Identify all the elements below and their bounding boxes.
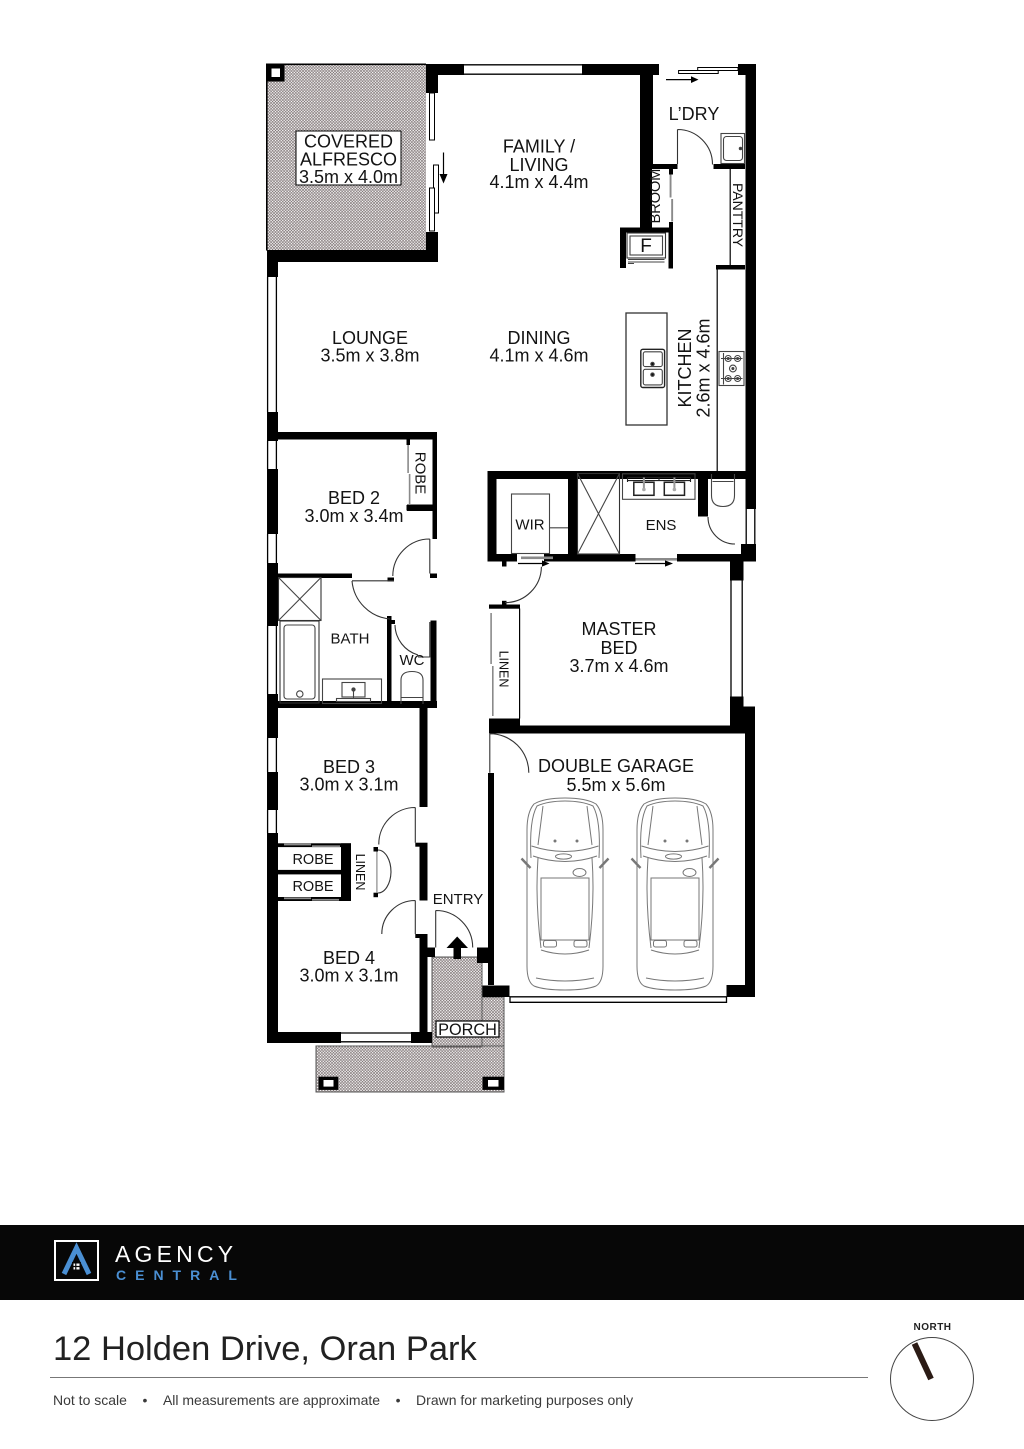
svg-text:BATH: BATH — [331, 631, 370, 648]
svg-text:3.0m x 3.1m: 3.0m x 3.1m — [299, 775, 398, 795]
svg-text:PORCH: PORCH — [438, 1021, 497, 1039]
svg-text:WIR: WIR — [515, 517, 544, 534]
svg-text:KITCHEN: KITCHEN — [675, 328, 695, 407]
svg-text:L’DRY: L’DRY — [669, 104, 720, 124]
svg-text:BED 2: BED 2 — [328, 488, 380, 508]
svg-text:4.1m x 4.4m: 4.1m x 4.4m — [489, 172, 588, 192]
svg-text:ROBE: ROBE — [292, 879, 333, 895]
svg-text:ROBE: ROBE — [292, 852, 333, 868]
svg-text:PANTTRY: PANTTRY — [730, 183, 746, 248]
svg-text:2.6m x 4.6m: 2.6m x 4.6m — [694, 318, 714, 417]
svg-text:BROOM: BROOM — [648, 169, 664, 224]
svg-text:BED: BED — [600, 638, 637, 658]
svg-text:ENS: ENS — [646, 517, 677, 534]
svg-text:WC: WC — [400, 652, 425, 669]
svg-text:DOUBLE GARAGE: DOUBLE GARAGE — [538, 756, 694, 776]
svg-text:FAMILY /: FAMILY / — [503, 137, 575, 157]
svg-text:ENTRY: ENTRY — [433, 891, 484, 908]
svg-text:F: F — [640, 236, 652, 257]
svg-text:3.5m x 4.0m: 3.5m x 4.0m — [299, 167, 398, 187]
svg-text:3.5m x 3.8m: 3.5m x 3.8m — [320, 346, 419, 366]
svg-text:3.0m x 3.1m: 3.0m x 3.1m — [299, 966, 398, 986]
svg-text:5.5m x 5.6m: 5.5m x 5.6m — [566, 775, 665, 795]
svg-text:LINEN: LINEN — [497, 651, 511, 688]
svg-text:3.0m x 3.4m: 3.0m x 3.4m — [304, 506, 403, 526]
svg-text:COVERED: COVERED — [304, 132, 393, 152]
svg-text:ROBE: ROBE — [412, 452, 429, 495]
svg-text:3.7m x 4.6m: 3.7m x 4.6m — [569, 656, 668, 676]
svg-text:MASTER: MASTER — [581, 619, 656, 639]
svg-text:LINEN: LINEN — [353, 854, 367, 891]
svg-text:4.1m x 4.6m: 4.1m x 4.6m — [489, 346, 588, 366]
